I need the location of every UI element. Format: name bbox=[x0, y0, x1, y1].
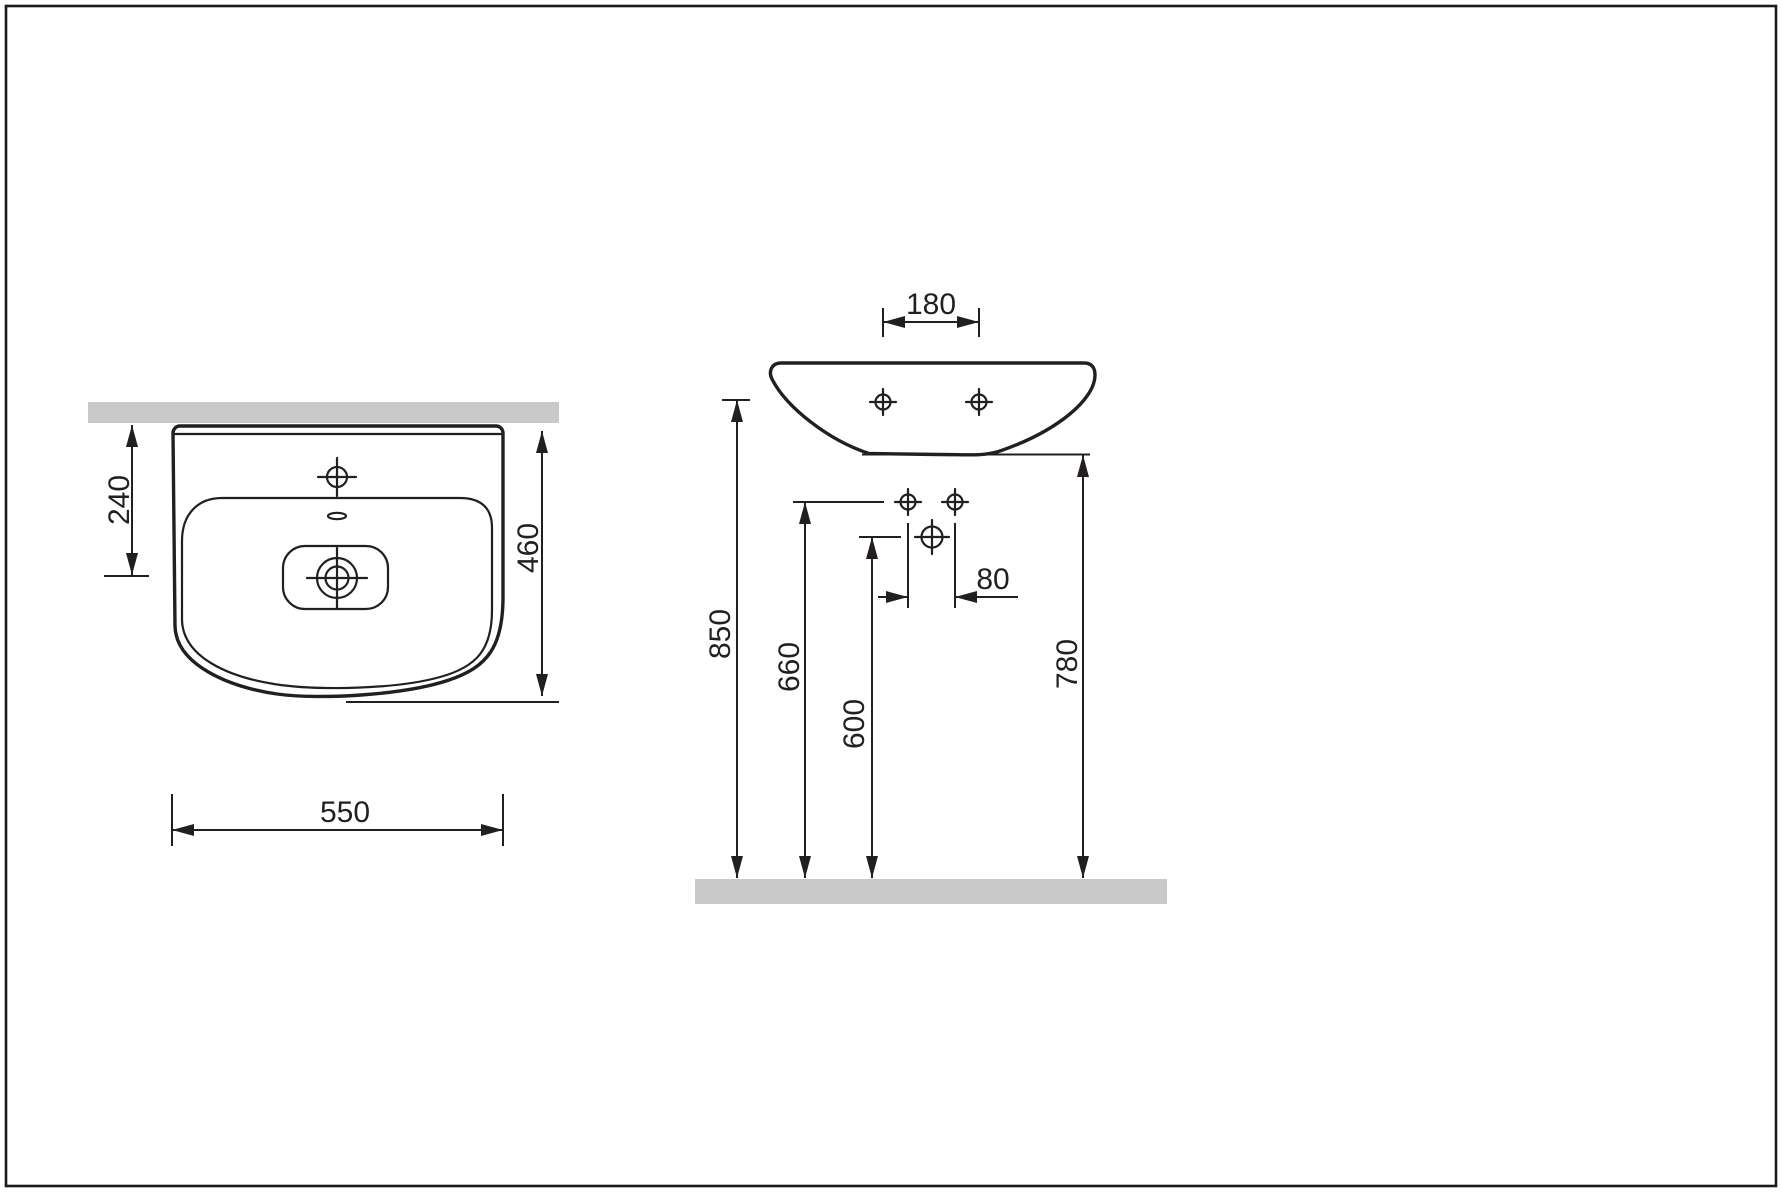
drain-outlet-hole bbox=[915, 520, 949, 554]
dimension-fixing-holes-height: 660 bbox=[773, 502, 806, 878]
basin-outline-front-view bbox=[770, 363, 1095, 455]
dimension-rim-height: 850 bbox=[704, 400, 750, 878]
dimension-fixing-hole-spacing: 80 bbox=[878, 563, 1018, 597]
overflow-slot bbox=[328, 513, 346, 519]
fixing-hole-right bbox=[942, 489, 968, 515]
top-view: 240 460 550 bbox=[88, 402, 559, 846]
dim-660-label: 660 bbox=[773, 642, 806, 692]
dim-240-label: 240 bbox=[103, 475, 136, 525]
dim-850-label: 850 bbox=[704, 609, 737, 659]
dimension-drain-height: 600 bbox=[838, 537, 872, 878]
technical-drawing-canvas: 240 460 550 bbox=[0, 0, 1782, 1192]
dimension-wall-to-drain: 240 bbox=[103, 425, 149, 576]
fixing-hole-left bbox=[895, 489, 921, 515]
faucet-hole bbox=[318, 458, 356, 496]
dim-80-label: 80 bbox=[976, 563, 1009, 596]
dim-550-label: 550 bbox=[320, 796, 370, 829]
drain-hole bbox=[307, 548, 367, 608]
dimension-tap-hole-spacing: 180 bbox=[883, 288, 979, 337]
floor-surface bbox=[695, 879, 1167, 904]
front-view: 180 80 bbox=[695, 288, 1167, 904]
wall-surface bbox=[88, 402, 559, 423]
dim-180-label: 180 bbox=[906, 288, 956, 321]
dim-460-label: 460 bbox=[512, 523, 545, 573]
dim-600-label: 600 bbox=[838, 699, 871, 749]
tap-hole-right bbox=[966, 389, 992, 415]
dimension-underside-height: 780 bbox=[1051, 455, 1084, 878]
dim-780-label: 780 bbox=[1051, 639, 1084, 689]
dimension-width: 550 bbox=[172, 794, 503, 846]
dimension-depth: 460 bbox=[346, 431, 559, 702]
tap-hole-left bbox=[870, 389, 896, 415]
